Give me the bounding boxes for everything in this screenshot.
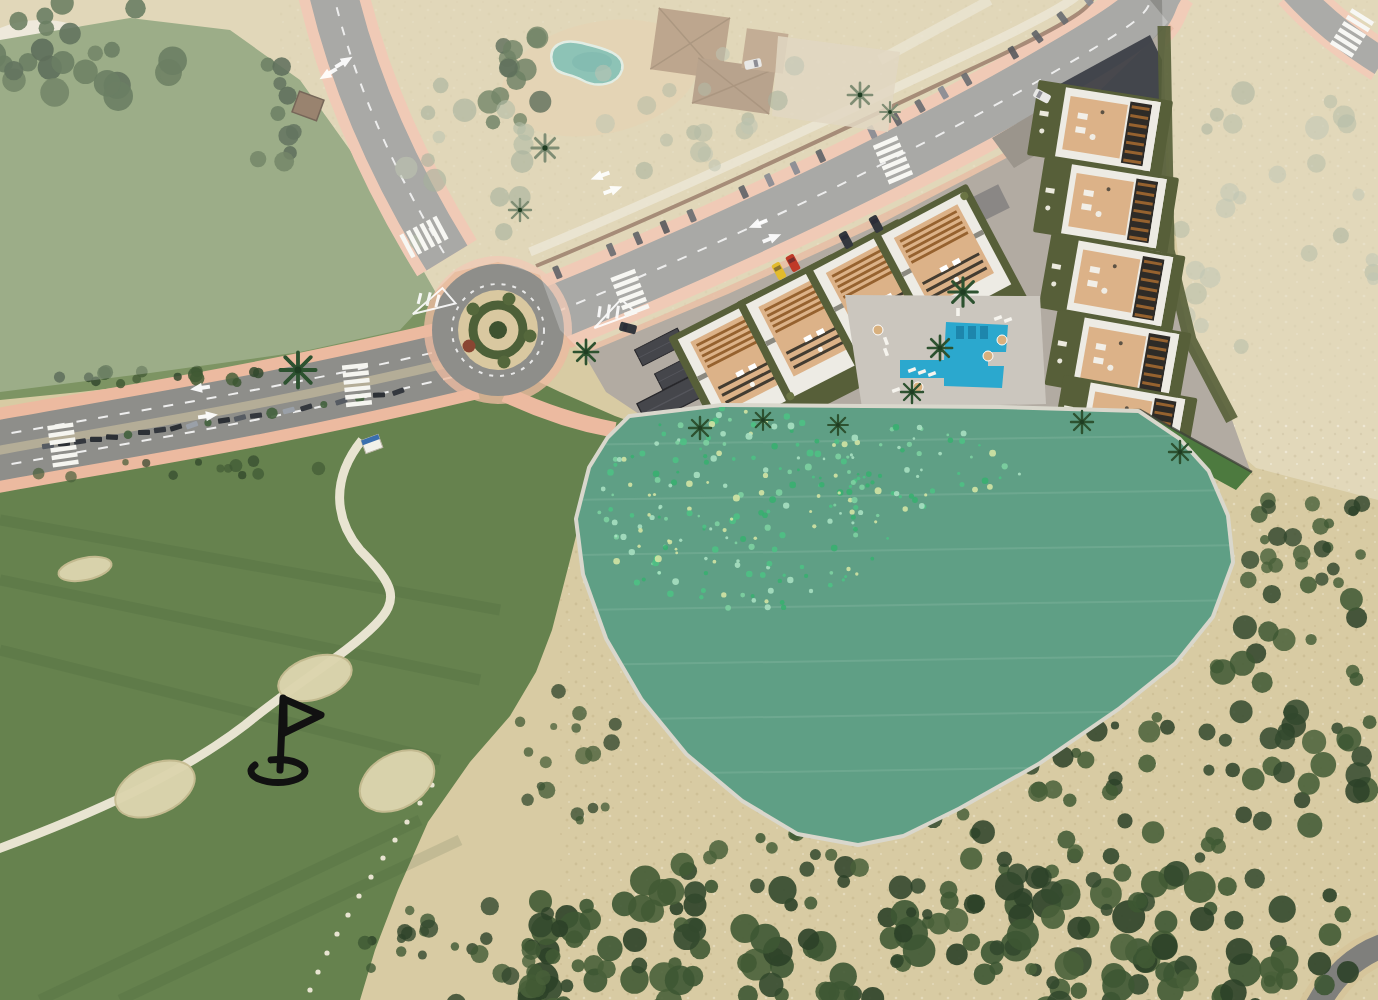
aerial-site-map [0,0,1378,1000]
communal-pool-area [845,295,1046,408]
site-plan-canvas [0,0,1378,1000]
